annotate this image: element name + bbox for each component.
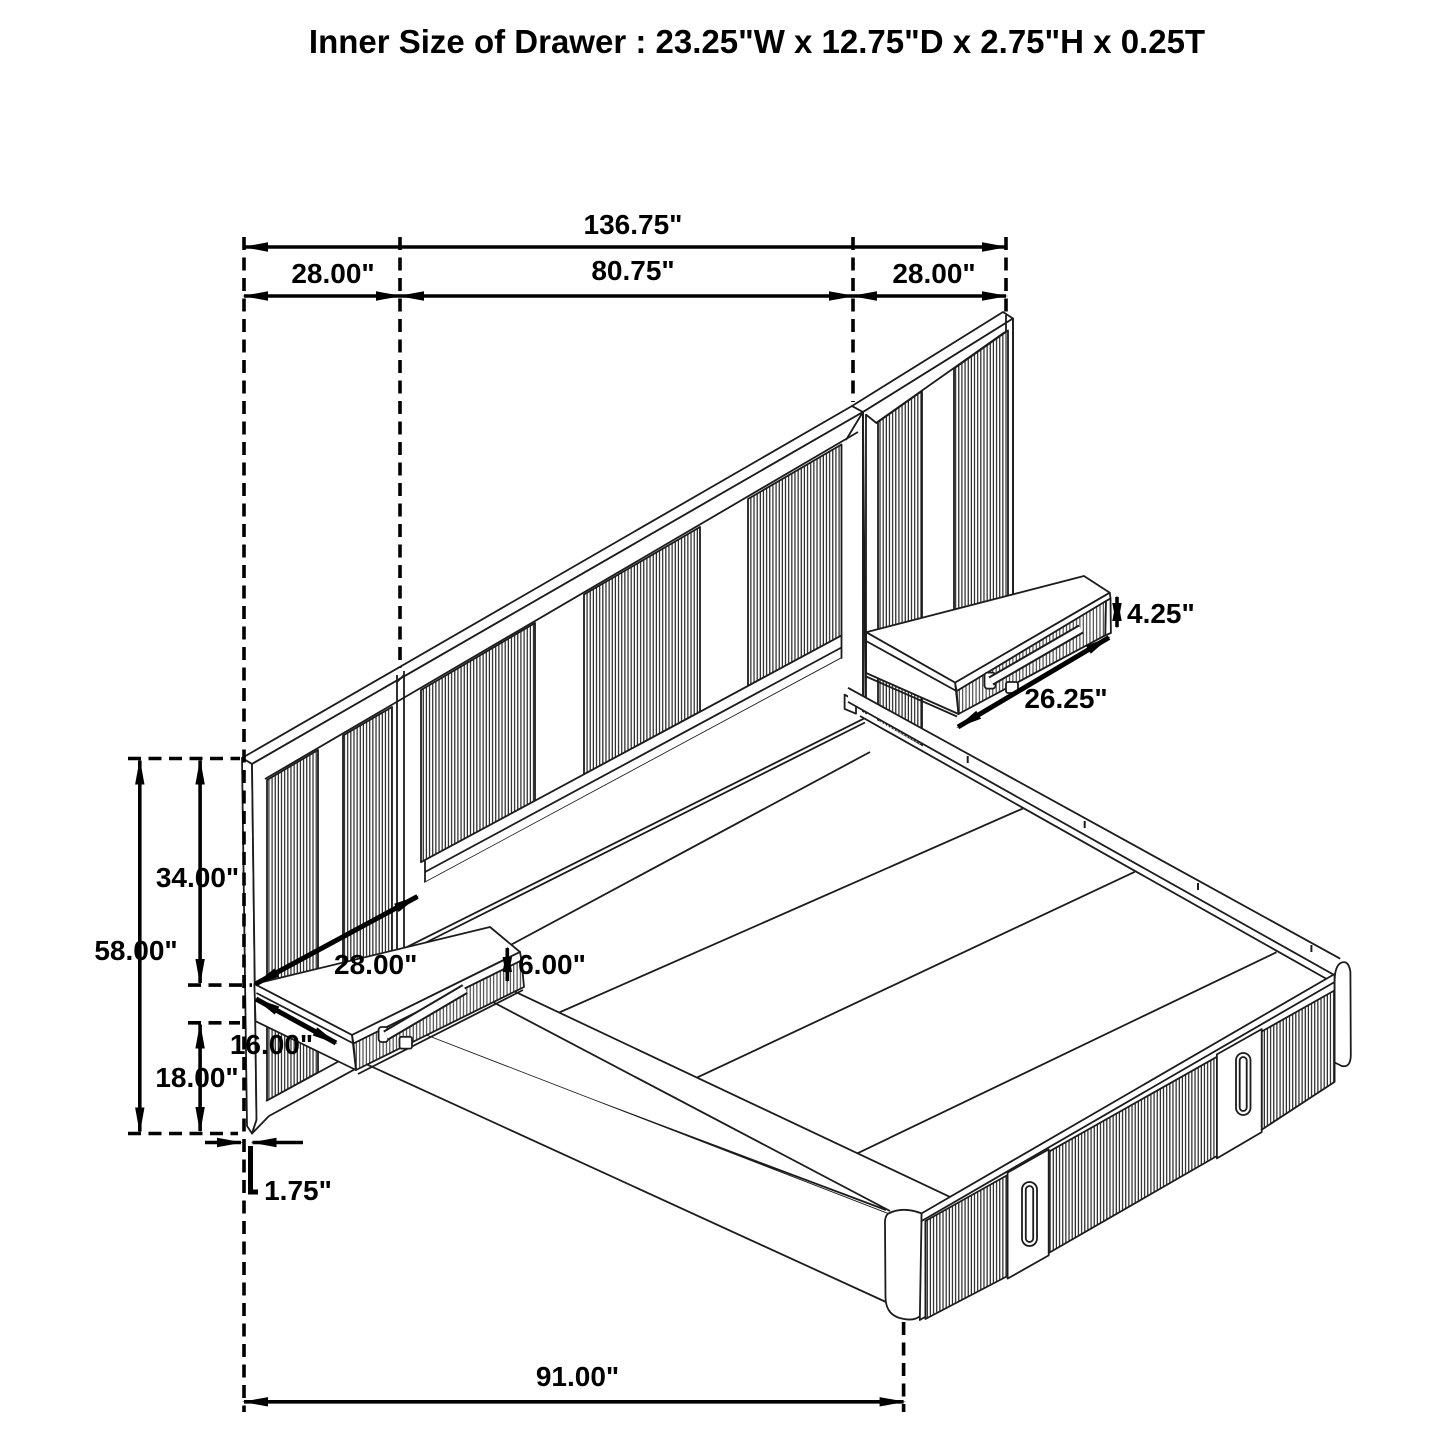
svg-text:28.00": 28.00"	[334, 949, 417, 980]
svg-text:6.00": 6.00"	[518, 949, 586, 980]
svg-text:16.00": 16.00"	[230, 1029, 313, 1060]
svg-text:26.25": 26.25"	[1024, 683, 1107, 714]
svg-text:18.00": 18.00"	[155, 1062, 238, 1093]
svg-text:4.25": 4.25"	[1127, 598, 1195, 629]
svg-text:1.75": 1.75"	[264, 1175, 332, 1206]
svg-text:91.00": 91.00"	[536, 1361, 619, 1392]
svg-text:34.00": 34.00"	[156, 862, 239, 893]
svg-text:58.00": 58.00"	[94, 935, 177, 966]
svg-text:136.75": 136.75"	[584, 209, 683, 240]
svg-text:Inner Size of Drawer : 23.25"W: Inner Size of Drawer : 23.25"W x 12.75"D…	[309, 23, 1205, 60]
svg-text:80.75": 80.75"	[591, 255, 674, 286]
svg-text:28.00": 28.00"	[892, 258, 975, 289]
svg-text:28.00": 28.00"	[291, 258, 374, 289]
